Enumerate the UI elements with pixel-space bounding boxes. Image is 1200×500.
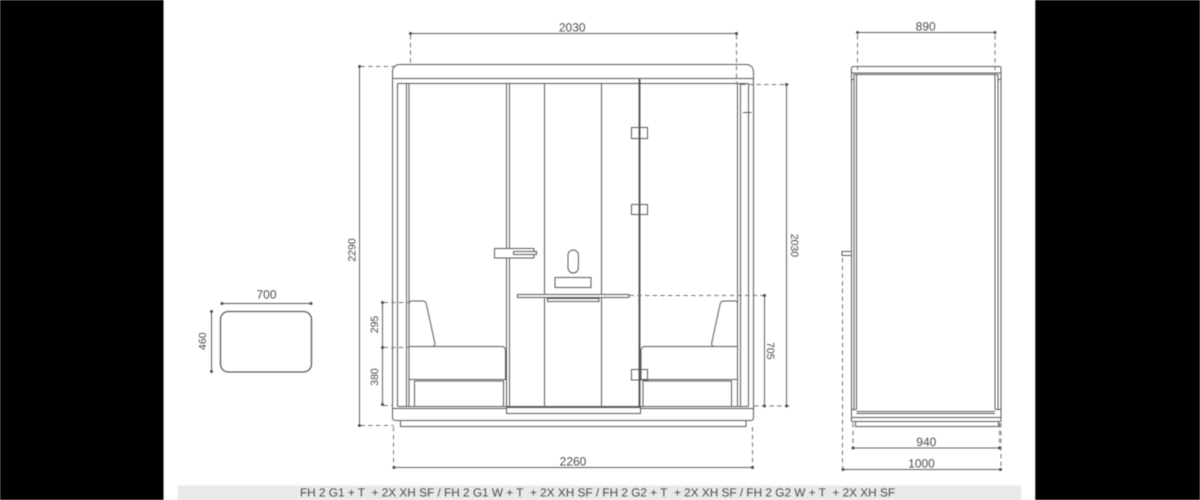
- svg-text:2030: 2030: [788, 234, 800, 258]
- svg-text:460: 460: [197, 332, 209, 350]
- svg-text:700: 700: [256, 288, 276, 302]
- svg-text:705: 705: [764, 342, 776, 360]
- svg-text:2030: 2030: [559, 21, 586, 35]
- svg-text:2260: 2260: [560, 455, 587, 469]
- svg-text:FH 2 G1 + T + 2X XH SF / FH 2: FH 2 G1 + T + 2X XH SF / FH 2 G1 W + T +…: [300, 485, 895, 499]
- svg-text:295: 295: [369, 316, 381, 334]
- svg-text:1000: 1000: [908, 457, 935, 471]
- svg-text:2290: 2290: [346, 238, 358, 262]
- svg-text:940: 940: [916, 435, 936, 449]
- svg-text:380: 380: [369, 368, 381, 386]
- svg-text:890: 890: [916, 20, 936, 34]
